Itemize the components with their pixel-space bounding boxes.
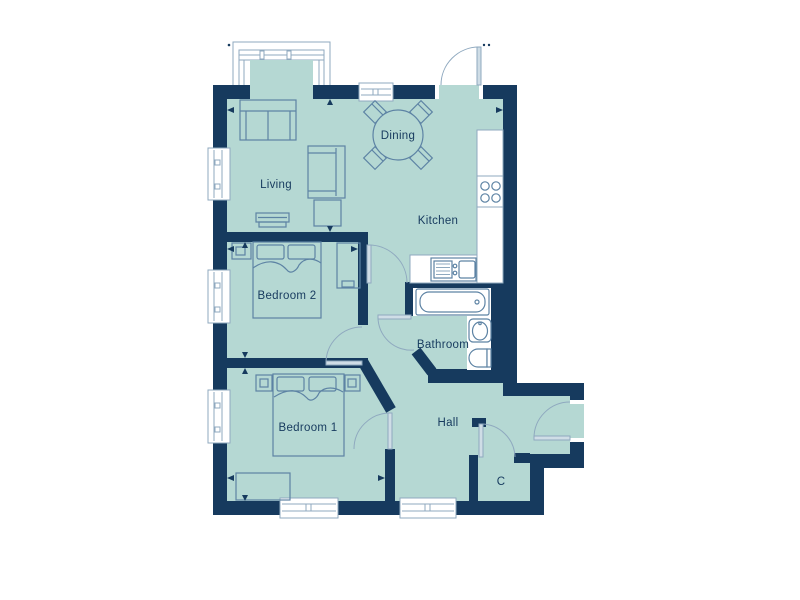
door-leaf xyxy=(326,361,362,365)
floorplan-canvas: Living Dining Kitchen Bedroom 2 Bedroom … xyxy=(0,0,800,600)
door-leaf xyxy=(378,315,411,319)
door-swing-arc xyxy=(441,47,479,85)
worktop-bottom xyxy=(410,255,477,283)
door-opening xyxy=(570,404,584,438)
door-opening xyxy=(439,85,479,99)
room-label-dining: Dining xyxy=(381,130,415,142)
door-leaf xyxy=(534,436,570,440)
window-living xyxy=(208,148,230,200)
window-bedroom1-bottom xyxy=(280,498,338,518)
wall-living-bedroom2 xyxy=(227,232,368,242)
bay-mullion xyxy=(287,51,291,59)
door-kitchen-external xyxy=(435,44,490,99)
room-label-bathroom: Bathroom xyxy=(417,339,469,351)
wall-cupboard-top xyxy=(514,453,530,463)
door-leaf xyxy=(479,424,483,457)
bay-opening xyxy=(250,85,313,99)
room-label-hall: Hall xyxy=(437,417,458,429)
window-hall-bottom xyxy=(400,498,456,518)
room-label-bedroom1: Bedroom 1 xyxy=(279,422,338,434)
bay-mullion xyxy=(260,51,264,59)
room-label-bedroom2: Bedroom 2 xyxy=(258,290,317,302)
door-jamb xyxy=(479,85,483,99)
door-jamb xyxy=(570,400,584,404)
window-bedroom1 xyxy=(208,390,230,443)
window-bedroom2 xyxy=(208,270,230,323)
wall-cupboard-left xyxy=(469,455,478,501)
door-jamb xyxy=(435,85,439,99)
room-label-cupboard: C xyxy=(497,476,506,488)
reference-dot xyxy=(483,44,485,46)
door-jamb xyxy=(570,438,584,442)
door-leaf xyxy=(367,245,371,283)
wall-bathroom-right xyxy=(491,288,503,372)
reference-dot xyxy=(488,44,490,46)
floorplan-svg: Living Dining Kitchen Bedroom 2 Bedroom … xyxy=(0,0,800,600)
wall-bathroom-left xyxy=(405,282,413,316)
window-top xyxy=(359,83,393,101)
wall-bedroom1-right xyxy=(385,449,395,501)
door-leaf xyxy=(388,413,392,449)
door-leaf xyxy=(477,47,481,85)
reference-dot xyxy=(228,44,231,47)
toilet-icon xyxy=(469,349,491,367)
room-label-kitchen: Kitchen xyxy=(418,215,458,227)
room-label-living: Living xyxy=(260,179,292,191)
